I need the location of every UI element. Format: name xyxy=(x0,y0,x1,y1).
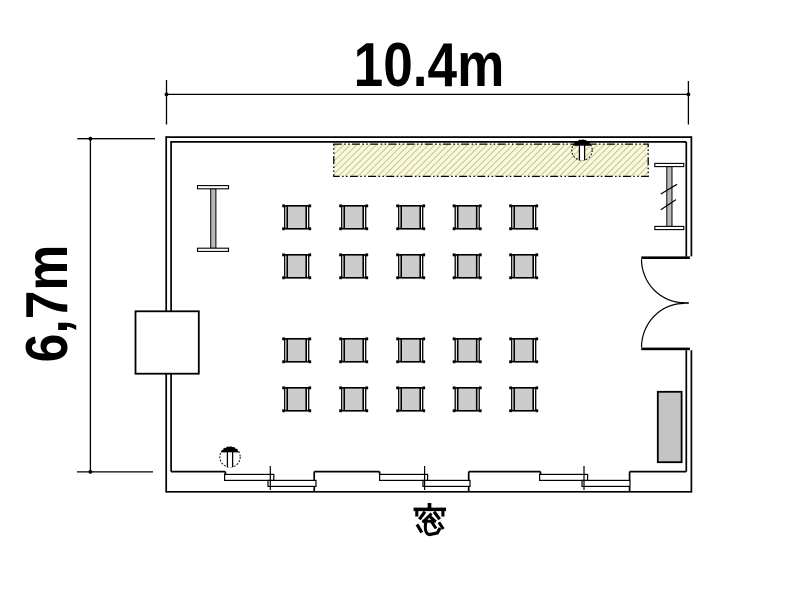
svg-text:10.4m: 10.4m xyxy=(354,30,505,100)
svg-text:6,7m: 6,7m xyxy=(14,245,80,363)
